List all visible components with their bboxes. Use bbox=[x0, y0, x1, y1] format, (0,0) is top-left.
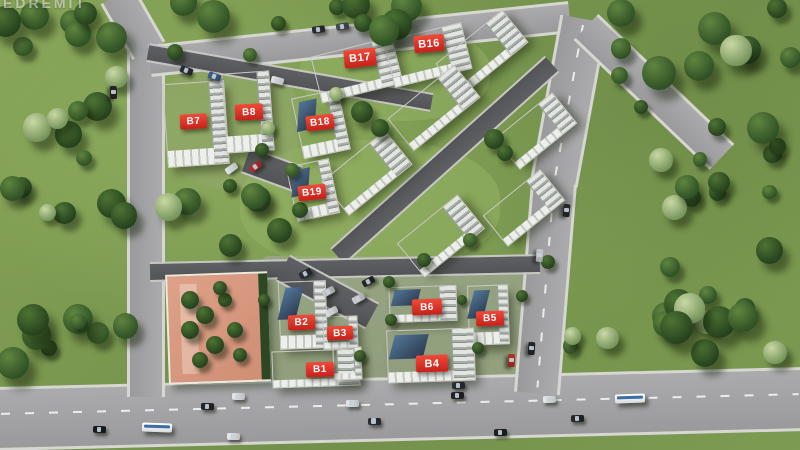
tree bbox=[369, 15, 399, 45]
car-windshield bbox=[574, 415, 578, 420]
tree bbox=[457, 295, 467, 305]
building-label-b2: B2 bbox=[287, 314, 315, 330]
tree bbox=[684, 51, 714, 81]
tree bbox=[649, 148, 673, 172]
tree bbox=[219, 234, 242, 257]
bus-window-stripe bbox=[144, 424, 169, 428]
tree bbox=[261, 121, 275, 135]
car bbox=[226, 432, 239, 439]
building-label-b1: B1 bbox=[306, 361, 335, 377]
car bbox=[200, 402, 213, 409]
aerial-site-render: B7B8B18B19B17B16B2B3B1B6B5B4EDREMİT bbox=[0, 0, 800, 450]
tree bbox=[693, 152, 708, 167]
car-windshield bbox=[235, 393, 239, 398]
tree bbox=[271, 16, 286, 31]
tree bbox=[611, 38, 632, 59]
tree bbox=[371, 119, 389, 137]
car-windshield bbox=[364, 278, 370, 285]
tree bbox=[497, 145, 513, 161]
tree bbox=[763, 341, 787, 365]
tree bbox=[111, 202, 138, 229]
tree bbox=[516, 290, 528, 302]
car bbox=[527, 341, 535, 354]
courtyard-tree bbox=[196, 306, 214, 324]
tree bbox=[756, 237, 783, 264]
tree bbox=[17, 304, 49, 336]
car bbox=[335, 22, 349, 31]
lane-dash-line bbox=[1, 393, 799, 415]
building-label-b18: B18 bbox=[305, 113, 334, 131]
tree bbox=[708, 172, 730, 194]
tree bbox=[463, 233, 477, 247]
car-windshield bbox=[274, 77, 279, 83]
courtyard-tree bbox=[218, 293, 232, 307]
car-windshield bbox=[563, 207, 569, 212]
car-windshield bbox=[508, 357, 513, 361]
car-windshield bbox=[251, 163, 257, 170]
tree bbox=[285, 163, 299, 177]
car-windshield bbox=[455, 382, 459, 387]
tree bbox=[596, 327, 619, 350]
car bbox=[92, 425, 105, 432]
tree bbox=[780, 47, 800, 68]
building-label-b4: B4 bbox=[416, 354, 449, 372]
car bbox=[311, 25, 325, 34]
car-windshield bbox=[204, 403, 208, 408]
car bbox=[570, 414, 583, 421]
tree bbox=[255, 143, 269, 157]
courtyard-tree bbox=[192, 352, 208, 368]
tree bbox=[720, 35, 751, 66]
tree bbox=[53, 202, 75, 224]
courtyard-tree bbox=[233, 348, 247, 362]
building-terrace-steps bbox=[324, 341, 349, 348]
tree bbox=[65, 21, 91, 47]
car-windshield bbox=[349, 400, 353, 405]
tree bbox=[329, 87, 343, 101]
tree bbox=[747, 112, 779, 144]
courtyard-tree bbox=[181, 321, 199, 339]
car-windshield bbox=[301, 270, 307, 277]
car bbox=[507, 353, 514, 366]
tree bbox=[155, 193, 183, 221]
tree bbox=[767, 0, 787, 18]
watermark-text: EDREMİT bbox=[3, 0, 87, 11]
tree bbox=[728, 302, 758, 332]
car-windshield bbox=[536, 252, 542, 257]
building-terrace-steps bbox=[281, 334, 316, 348]
building-terrace-steps bbox=[168, 147, 215, 167]
car bbox=[542, 395, 555, 402]
car-windshield bbox=[371, 418, 375, 423]
tree bbox=[607, 0, 636, 27]
tree bbox=[660, 257, 680, 277]
building-label-b19: B19 bbox=[297, 183, 326, 201]
car bbox=[451, 381, 464, 388]
tree bbox=[691, 339, 720, 368]
tree bbox=[354, 350, 366, 362]
building-label-b17: B17 bbox=[343, 47, 377, 68]
tree bbox=[564, 327, 582, 345]
courtyard-tree bbox=[181, 291, 199, 309]
tree bbox=[113, 313, 138, 338]
car-windshield bbox=[454, 392, 458, 397]
tree bbox=[0, 347, 29, 378]
bus bbox=[615, 393, 645, 403]
building-label-b16: B16 bbox=[413, 33, 444, 53]
courtyard-tree bbox=[213, 281, 227, 295]
car bbox=[450, 391, 463, 398]
building-label-b5: B5 bbox=[476, 310, 505, 326]
bus bbox=[142, 422, 172, 432]
tree bbox=[267, 218, 292, 243]
car-windshield bbox=[339, 23, 344, 29]
car-windshield bbox=[528, 345, 534, 350]
tree bbox=[0, 176, 25, 201]
car-windshield bbox=[315, 26, 320, 32]
tree bbox=[39, 204, 56, 221]
tree bbox=[197, 0, 230, 33]
building-label-b3: B3 bbox=[327, 326, 353, 341]
tree bbox=[167, 44, 183, 60]
tree bbox=[170, 0, 197, 16]
tree bbox=[76, 150, 93, 167]
tree bbox=[241, 183, 267, 209]
tree bbox=[70, 314, 86, 330]
tree bbox=[223, 179, 237, 193]
tree bbox=[660, 311, 693, 344]
car-windshield bbox=[327, 308, 333, 315]
car bbox=[535, 248, 543, 261]
tree bbox=[541, 255, 555, 269]
tree bbox=[383, 276, 395, 288]
tree bbox=[96, 22, 127, 53]
building-label-b8: B8 bbox=[235, 103, 264, 120]
bus-window-stripe bbox=[617, 395, 642, 399]
tree bbox=[292, 202, 308, 218]
tree bbox=[105, 66, 127, 88]
tree bbox=[472, 342, 484, 354]
tree bbox=[258, 294, 270, 306]
tree bbox=[243, 48, 257, 62]
tree bbox=[634, 100, 648, 114]
building-label-b7: B7 bbox=[179, 113, 207, 129]
car-windshield bbox=[96, 426, 100, 431]
building-label-b6: B6 bbox=[412, 298, 443, 315]
car-windshield bbox=[324, 288, 330, 295]
car-windshield bbox=[546, 396, 550, 401]
car bbox=[562, 203, 570, 217]
car bbox=[231, 392, 244, 399]
tree bbox=[662, 195, 687, 220]
car bbox=[368, 418, 381, 425]
tree bbox=[68, 101, 88, 121]
car-windshield bbox=[183, 67, 189, 73]
courtyard-tree bbox=[227, 322, 243, 338]
car bbox=[493, 428, 506, 435]
tree bbox=[385, 314, 397, 326]
car-windshield bbox=[110, 89, 115, 93]
car-windshield bbox=[230, 433, 234, 438]
car-windshield bbox=[227, 165, 233, 172]
tree bbox=[351, 101, 373, 123]
building-facade bbox=[451, 328, 474, 380]
car bbox=[346, 400, 359, 407]
tree bbox=[762, 185, 777, 200]
tree bbox=[13, 37, 33, 57]
courtyard-tree bbox=[206, 336, 224, 354]
building-terrace-steps bbox=[334, 372, 355, 379]
car-windshield bbox=[497, 429, 501, 434]
car-windshield bbox=[354, 295, 360, 302]
tree bbox=[675, 175, 699, 199]
tree bbox=[417, 253, 431, 267]
car bbox=[109, 85, 116, 98]
car-windshield bbox=[211, 73, 217, 79]
